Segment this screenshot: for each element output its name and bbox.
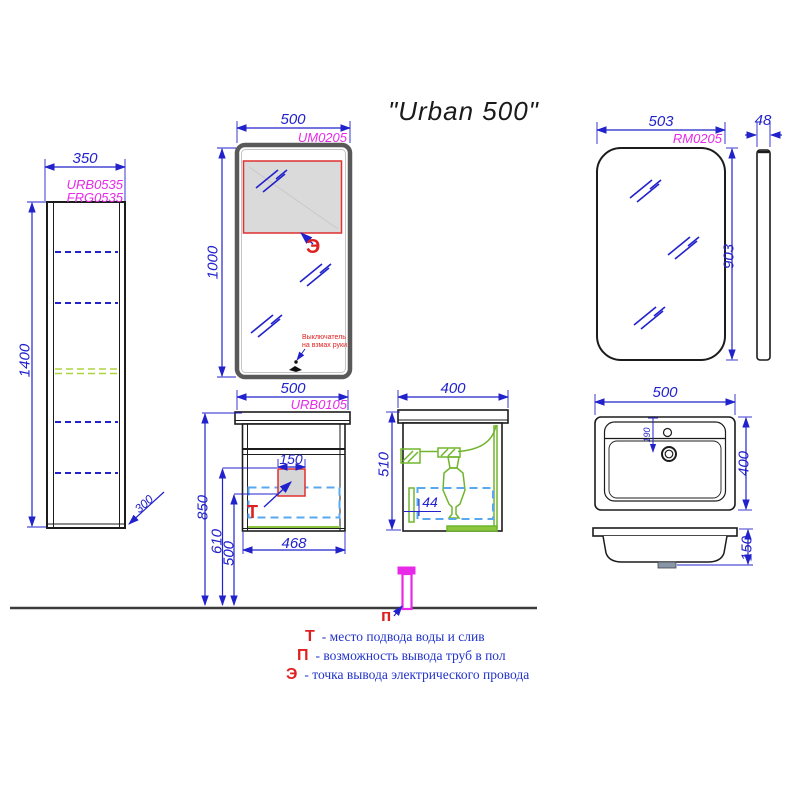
legend-key-water: Т bbox=[305, 629, 315, 645]
sink-drain-offset-dim: 190 bbox=[642, 420, 652, 450]
legend-row-electric: Э - точка вывода электрического провода bbox=[286, 667, 529, 683]
tall-cabinet-width-dim: 350 bbox=[45, 150, 125, 167]
vanity-cutout-dim: 150 bbox=[272, 451, 310, 467]
mirror-front-width-dim: 500 bbox=[258, 111, 328, 128]
vanity-side-offset-dim: 44 bbox=[415, 494, 445, 510]
pipe-marker: п bbox=[381, 606, 391, 626]
legend-text-electric: - точка вывода электрического провода bbox=[304, 667, 529, 683]
mirror-right-code: RM0205 bbox=[650, 131, 722, 146]
vanity-side-height-dim: 510 bbox=[376, 435, 393, 495]
mirror-right-depth-dim: 48 bbox=[744, 112, 782, 129]
vanity-width-dim: 500 bbox=[263, 380, 323, 397]
vanity-body-width-dim: 468 bbox=[264, 535, 324, 552]
mirror-right-height-dim: 903 bbox=[721, 227, 738, 287]
water-marker: Т bbox=[247, 502, 258, 523]
mirror-front-code: UM0205 bbox=[275, 130, 347, 145]
wave-switch-note-line1: Выключатель bbox=[302, 334, 347, 342]
tall-cabinet-code-bottom: FRG0535 bbox=[60, 190, 123, 205]
drain-stub bbox=[658, 562, 676, 568]
sink-side-drawing bbox=[593, 528, 737, 568]
mirror-right-drawing bbox=[597, 148, 770, 360]
electric-marker: Э bbox=[306, 236, 320, 259]
vanity-side-depth-dim: 400 bbox=[423, 380, 483, 397]
mirror-front-height-dim: 1000 bbox=[205, 233, 222, 293]
legend-key-electric: Э bbox=[286, 667, 297, 683]
wave-switch-note-line2: на взмах руки bbox=[302, 342, 347, 350]
legend-key-pipes: П bbox=[297, 648, 309, 664]
wave-switch-note: Выключатель на взмах руки bbox=[302, 334, 347, 349]
vanity-service-cutout bbox=[278, 469, 305, 496]
sink-width-dim: 500 bbox=[635, 384, 695, 401]
legend-text-pipes: - возможность вывода труб в пол bbox=[316, 648, 506, 664]
vanity-height-low-dim: 500 bbox=[221, 524, 238, 584]
legend-row-water: Т - место подвода воды и слив bbox=[305, 629, 485, 645]
drawing-canvas: "Urban 500" 350 URB0535 FRG0535 1400 300… bbox=[0, 0, 800, 800]
vanity-code: URB0105 bbox=[275, 397, 347, 412]
sink-top-drawing bbox=[595, 417, 735, 510]
mirror-right-width-dim: 503 bbox=[626, 113, 696, 130]
page-title: "Urban 500" bbox=[388, 96, 539, 127]
tall-cabinet-height-dim: 1400 bbox=[17, 331, 34, 391]
sink-depth-dim: 400 bbox=[736, 434, 753, 494]
legend-row-pipes: П - возможность вывода труб в пол bbox=[297, 648, 506, 664]
legend-text-water: - место подвода воды и слив bbox=[322, 629, 485, 645]
sink-height-dim: 150 bbox=[739, 519, 756, 579]
tall-cabinet-drawing bbox=[47, 202, 125, 528]
